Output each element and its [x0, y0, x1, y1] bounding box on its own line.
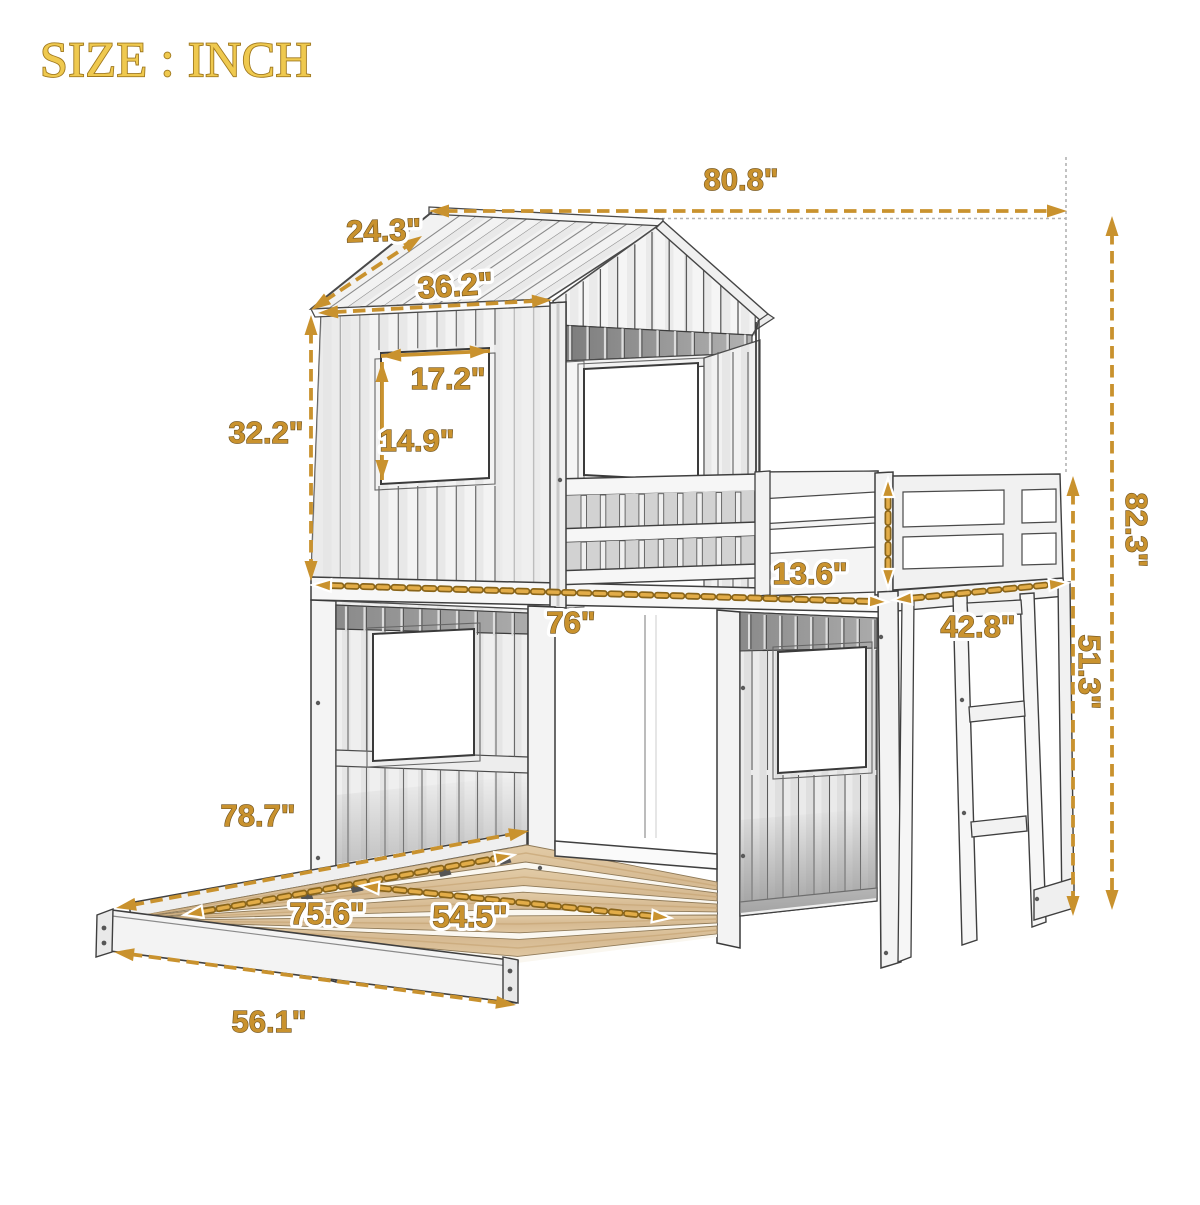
svg-text:17.2": 17.2": [410, 361, 485, 396]
svg-text:36.2": 36.2": [417, 265, 494, 305]
svg-text:80.8": 80.8": [703, 162, 778, 197]
svg-text:75.6": 75.6": [289, 896, 364, 931]
svg-text:76": 76": [546, 605, 595, 640]
svg-text:78.7": 78.7": [220, 798, 295, 833]
svg-text:14.9": 14.9": [379, 423, 454, 458]
svg-text:32.2": 32.2": [228, 415, 303, 450]
svg-text:56.1": 56.1": [231, 1004, 306, 1039]
svg-text:SIZE : INCH: SIZE : INCH: [40, 31, 312, 87]
svg-text:54.5": 54.5": [432, 899, 507, 934]
svg-text:24.3": 24.3": [346, 212, 422, 250]
svg-text:82.3": 82.3": [1119, 492, 1154, 567]
svg-text:42.8": 42.8": [940, 609, 1015, 644]
svg-text:13.6": 13.6": [772, 556, 847, 591]
svg-text:51.3": 51.3": [1072, 634, 1107, 709]
